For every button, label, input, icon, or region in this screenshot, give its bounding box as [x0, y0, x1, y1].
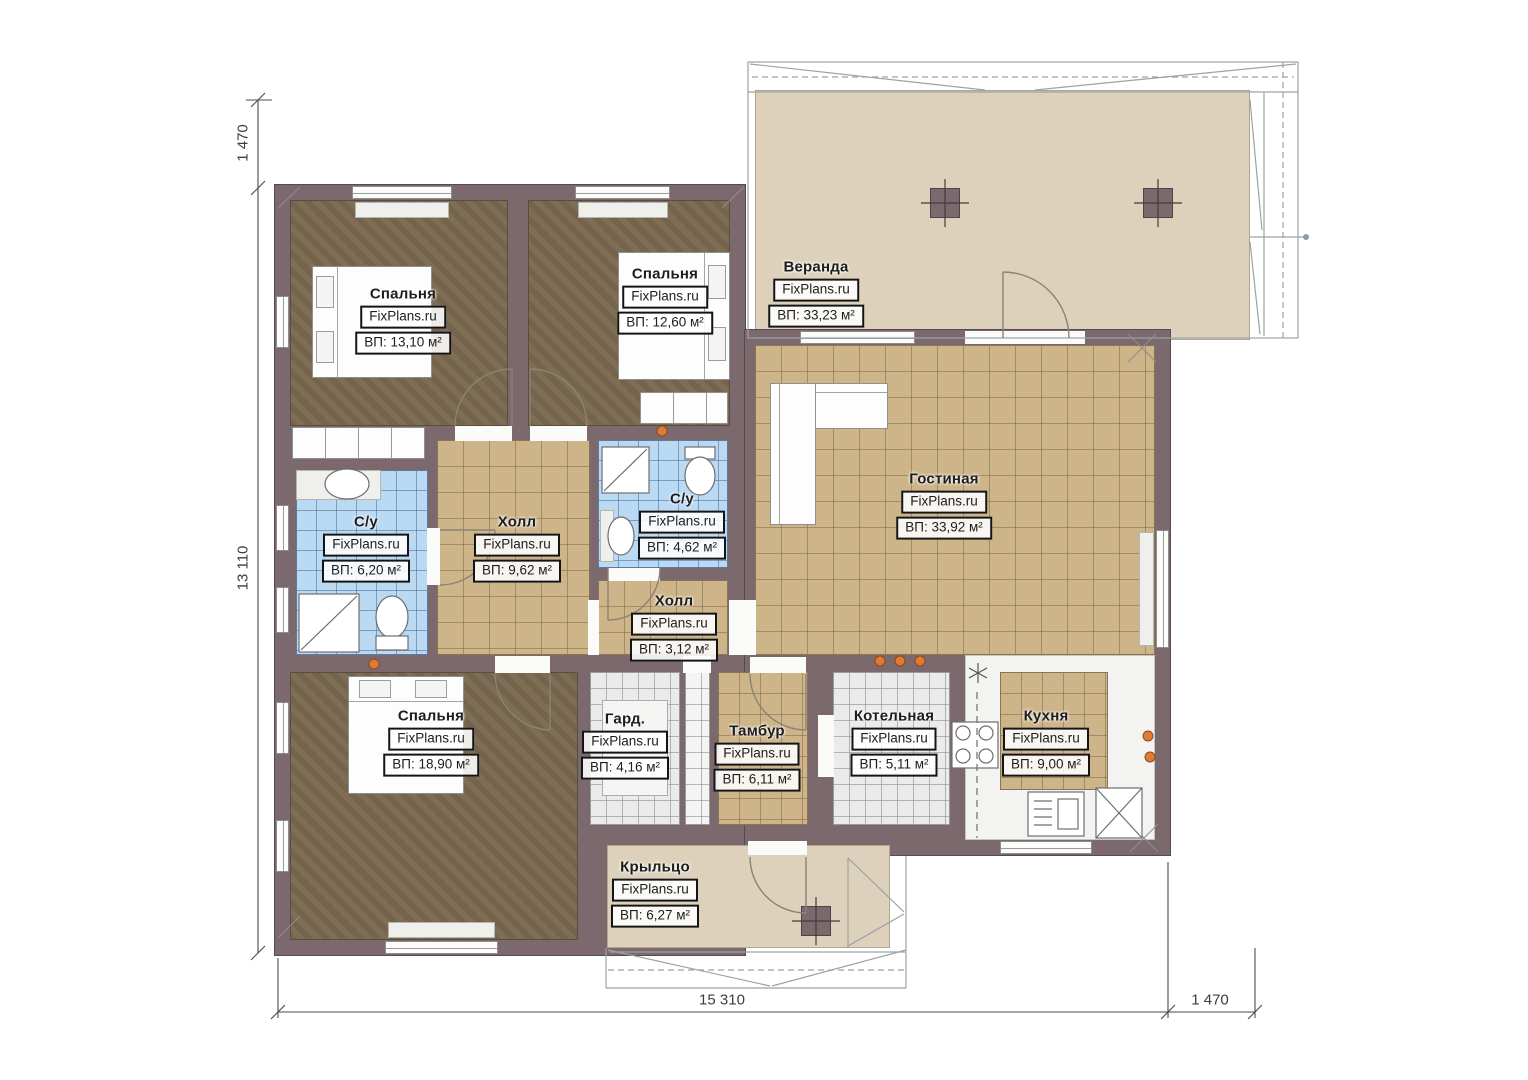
veranda-door-opening [965, 331, 1085, 344]
room-area: ВП: 33,23 м² [768, 305, 864, 328]
room-area: ВП: 33,92 м² [896, 517, 992, 540]
door-opening [818, 715, 834, 777]
room-name: Гард. [581, 711, 669, 728]
door-opening [455, 426, 512, 441]
watermark: FixPlans.ru [388, 728, 474, 751]
room-area: ВП: 13,10 м² [355, 332, 451, 355]
watermark: FixPlans.ru [612, 879, 698, 902]
door-opening [729, 600, 756, 655]
watermark: FixPlans.ru [714, 743, 800, 766]
room-name: Тамбур [713, 723, 800, 740]
room-name: С/у [322, 514, 410, 531]
watermark: FixPlans.ru [639, 511, 725, 534]
window [276, 296, 289, 348]
room-area: ВП: 6,27 м² [611, 905, 699, 928]
room-name: Спальня [617, 266, 713, 283]
pillow [415, 680, 447, 698]
radiator [388, 922, 495, 938]
door-opening [530, 426, 587, 441]
room-area: ВП: 5,11 м² [850, 754, 937, 777]
window [1156, 530, 1169, 648]
dimension-left-top: 1 470 [235, 124, 252, 162]
room-area: ВП: 3,12 м² [630, 639, 718, 662]
window [1000, 841, 1092, 854]
room-name: С/у [638, 491, 726, 508]
room-name: Спальня [383, 708, 479, 725]
door-opening [495, 656, 550, 673]
window [800, 331, 915, 344]
watermark: FixPlans.ru [1003, 728, 1089, 751]
pillow [316, 331, 334, 363]
room-area: ВП: 4,16 м² [581, 757, 669, 780]
room-label-kitchen: Кухня FixPlans.ru ВП: 9,00 м² [1002, 708, 1090, 777]
watermark: FixPlans.ru [851, 728, 937, 751]
pillow [359, 680, 391, 698]
watermark: FixPlans.ru [773, 279, 859, 302]
dimension-bottom-width: 15 310 [699, 992, 745, 1009]
room-area: ВП: 6,20 м² [322, 560, 410, 583]
room-label-bedroom-1: Спальня FixPlans.ru ВП: 13,10 м² [355, 286, 451, 355]
room-name: Спальня [355, 286, 451, 303]
radiator [355, 202, 449, 218]
room-label-bedroom-3: Спальня FixPlans.ru ВП: 18,90 м² [383, 708, 479, 777]
room-label-tambour: Тамбур FixPlans.ru ВП: 6,11 м² [713, 723, 800, 792]
bath-counter [600, 510, 614, 562]
room-name: Котельная [850, 708, 937, 725]
room-name: Гостиная [896, 471, 992, 488]
watermark: FixPlans.ru [901, 491, 987, 514]
room-area: ВП: 18,90 м² [383, 754, 479, 777]
room-name: Холл [473, 514, 561, 531]
radiator [578, 202, 668, 218]
window [276, 820, 289, 872]
room-area: ВП: 9,00 м² [1002, 754, 1090, 777]
door-opening [427, 528, 440, 585]
watermark: FixPlans.ru [323, 534, 409, 557]
bath-counter [296, 470, 381, 500]
room-name: Крыльцо [611, 859, 699, 876]
porch-door-opening [748, 841, 807, 855]
pillow [316, 276, 334, 308]
closet [292, 427, 425, 459]
floor-plan-canvas: Спальня FixPlans.ru ВП: 13,10 м² Спальня… [0, 0, 1528, 1080]
room-label-boiler: Котельная FixPlans.ru ВП: 5,11 м² [850, 708, 937, 777]
watermark: FixPlans.ru [360, 306, 446, 329]
room-area: ВП: 4,62 м² [638, 537, 726, 560]
room-area: ВП: 12,60 м² [617, 312, 713, 335]
door-opening [608, 568, 660, 581]
window [575, 186, 670, 199]
window [352, 186, 452, 199]
window [276, 587, 289, 633]
room-label-bedroom-2: Спальня FixPlans.ru ВП: 12,60 м² [617, 266, 713, 335]
watermark: FixPlans.ru [622, 286, 708, 309]
window [385, 941, 498, 954]
room-label-porch: Крыльцо FixPlans.ru ВП: 6,27 м² [611, 859, 699, 928]
closet [640, 392, 728, 424]
sofa-vertical [770, 383, 816, 525]
dimension-bottom-right: 1 470 [1191, 992, 1229, 1009]
room-name: Веранда [768, 259, 864, 276]
room-label-veranda: Веранда FixPlans.ru ВП: 33,23 м² [768, 259, 864, 328]
watermark: FixPlans.ru [474, 534, 560, 557]
corridor-strip-floor [685, 672, 710, 825]
veranda-column [930, 188, 960, 218]
veranda-column [1143, 188, 1173, 218]
door-opening [588, 600, 599, 655]
room-area: ВП: 9,62 м² [473, 560, 561, 583]
room-label-bath-1: С/у FixPlans.ru ВП: 6,20 м² [322, 514, 410, 583]
door-opening [750, 657, 806, 673]
watermark: FixPlans.ru [631, 613, 717, 636]
window [276, 702, 289, 754]
room-label-bath-2: С/у FixPlans.ru ВП: 4,62 м² [638, 491, 726, 560]
room-area: ВП: 6,11 м² [713, 769, 800, 792]
dimension-left-side: 13 110 [235, 546, 252, 591]
room-label-living: Гостиная FixPlans.ru ВП: 33,92 м² [896, 471, 992, 540]
window [276, 505, 289, 551]
room-label-hall-1: Холл FixPlans.ru ВП: 9,62 м² [473, 514, 561, 583]
room-name: Холл [630, 593, 718, 610]
room-label-hall-2: Холл FixPlans.ru ВП: 3,12 м² [630, 593, 718, 662]
radiator [1139, 532, 1154, 646]
room-label-wardrobe: Гард. FixPlans.ru ВП: 4,16 м² [581, 711, 669, 780]
watermark: FixPlans.ru [582, 731, 668, 754]
room-name: Кухня [1002, 708, 1090, 725]
porch-column [801, 906, 831, 936]
